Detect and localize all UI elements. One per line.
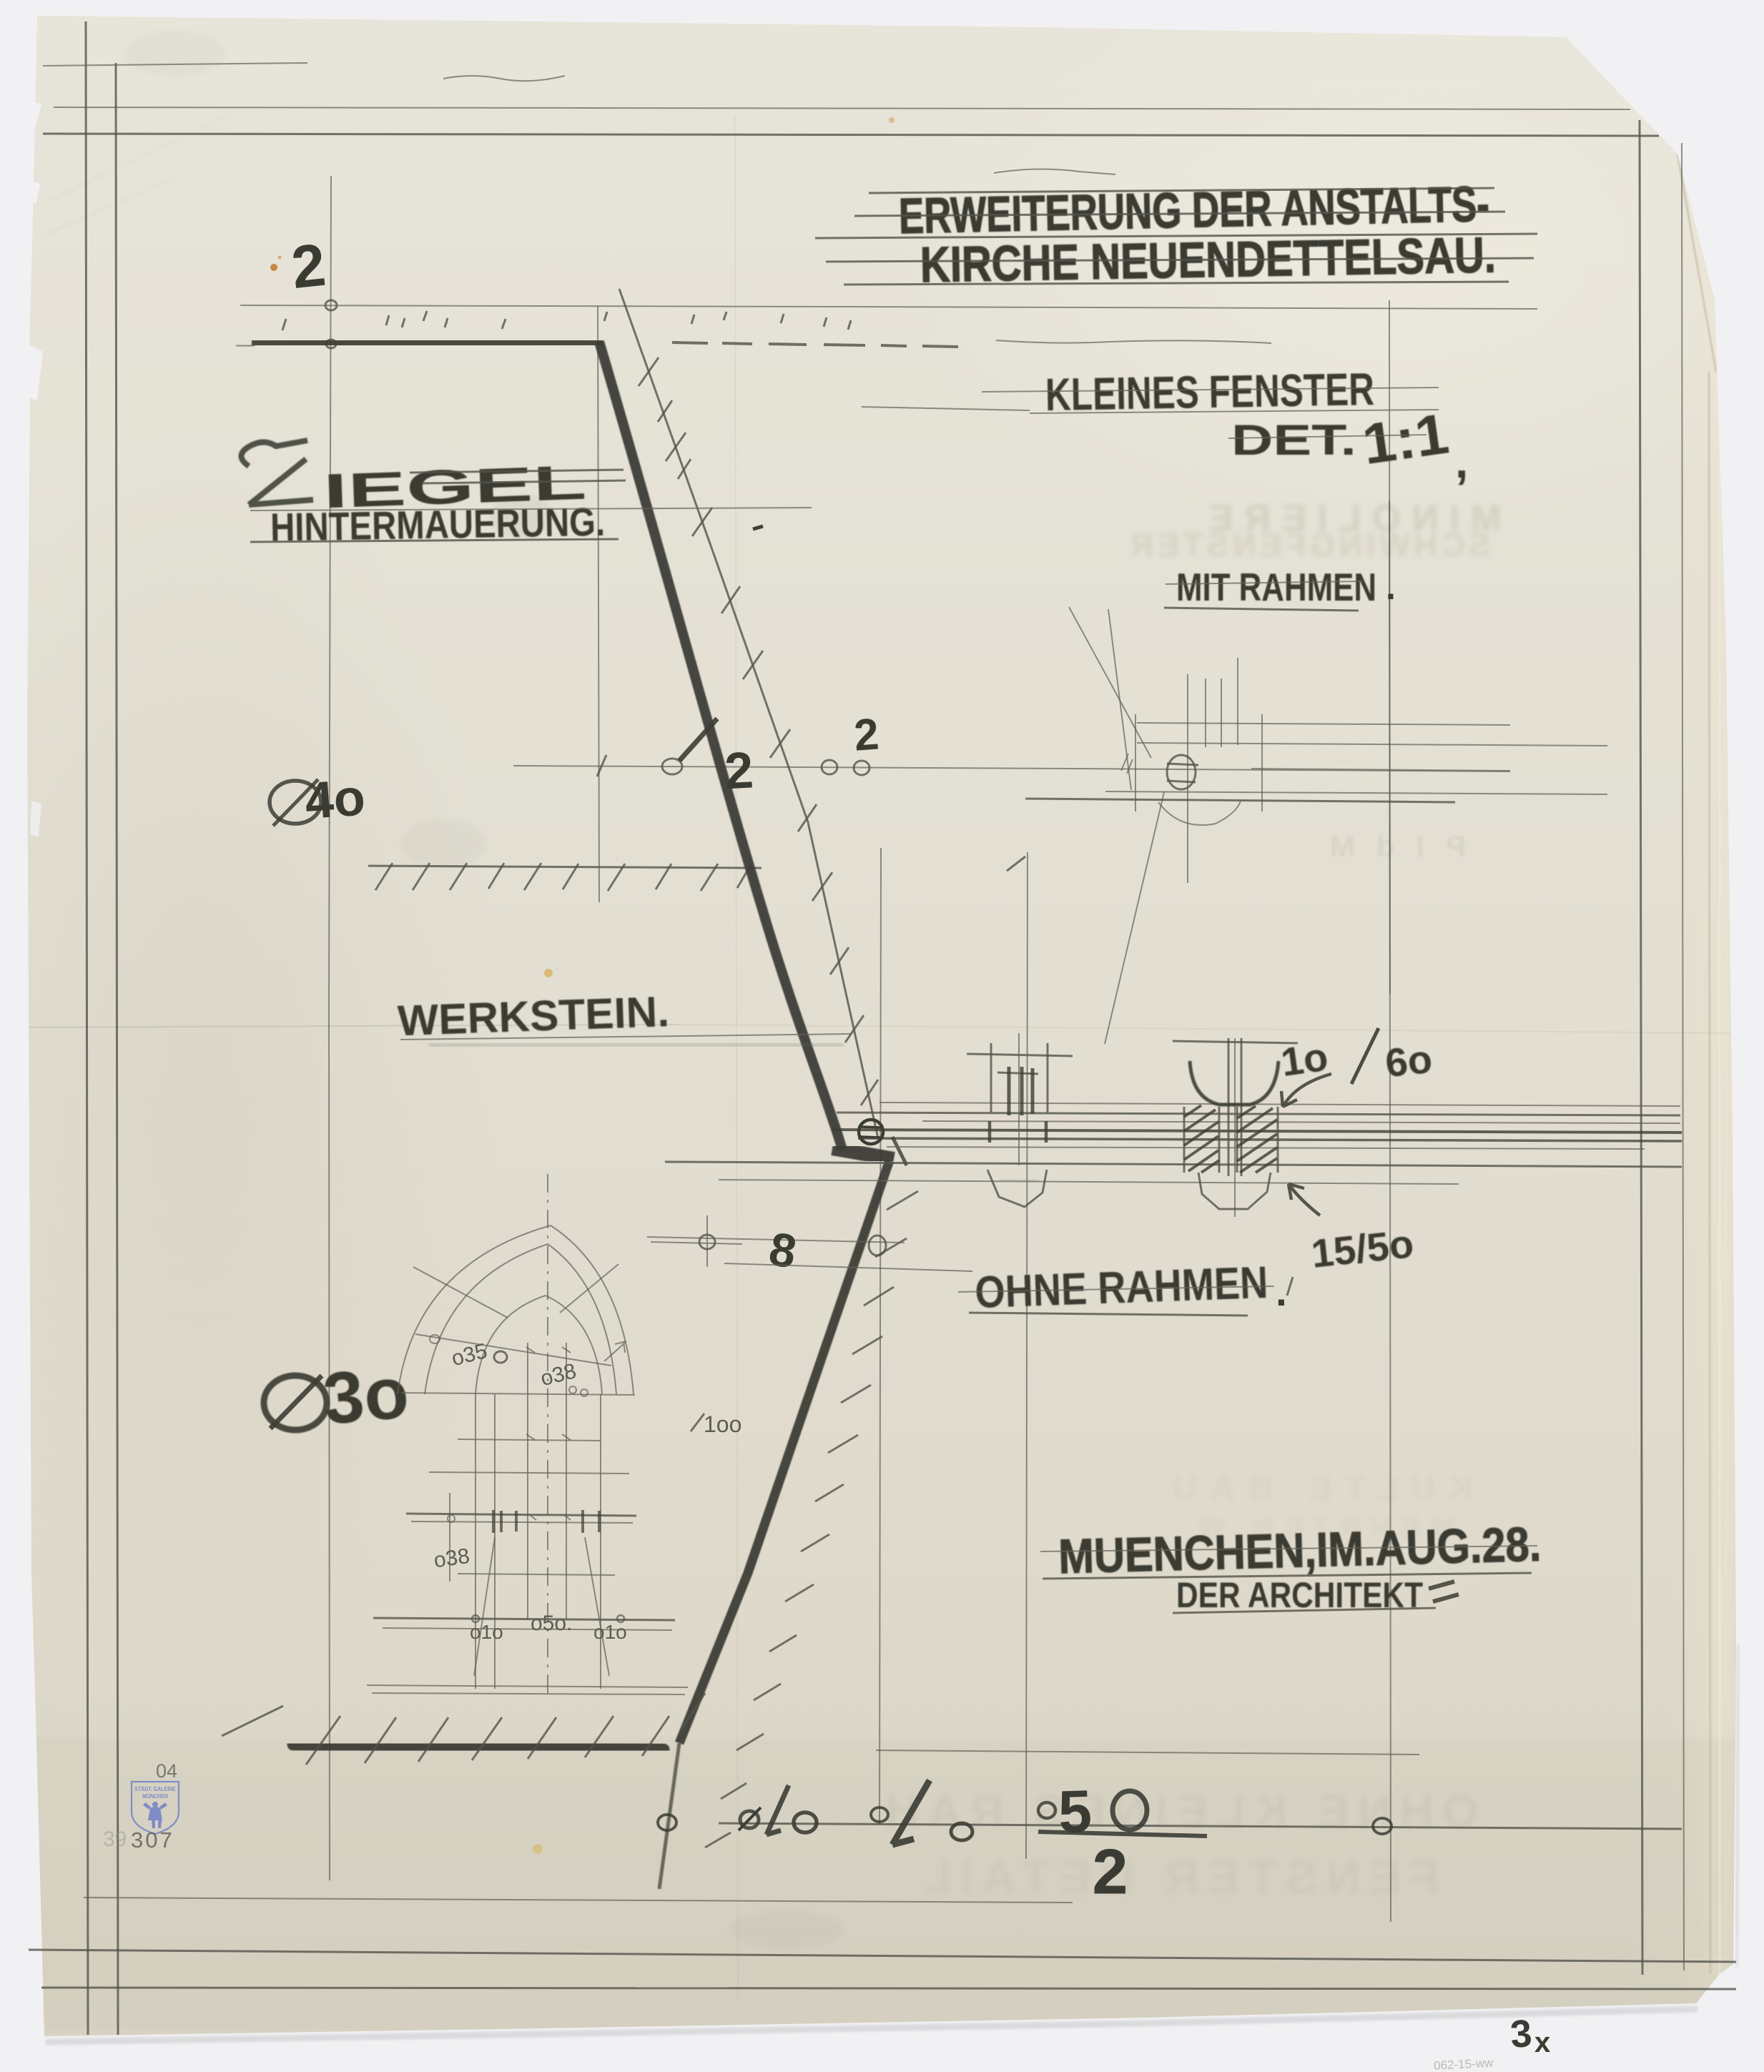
svg-text:o5o.: o5o. bbox=[531, 1612, 572, 1635]
svg-text:1:1: 1:1 bbox=[1359, 401, 1452, 476]
svg-text:DET.: DET. bbox=[1231, 416, 1356, 464]
svg-text:x: x bbox=[1534, 2027, 1550, 2058]
svg-text:STÄDT. GALERIE: STÄDT. GALERIE bbox=[134, 1785, 176, 1792]
svg-text:o38: o38 bbox=[433, 1544, 471, 1573]
svg-text:39: 39 bbox=[103, 1827, 127, 1851]
svg-text:307: 307 bbox=[131, 1827, 174, 1853]
svg-text:o1o: o1o bbox=[470, 1621, 503, 1643]
svg-text:,: , bbox=[1455, 435, 1468, 488]
svg-text:2: 2 bbox=[852, 709, 880, 760]
svg-text:SCHWINGFENSTER: SCHWINGFENSTER bbox=[1130, 526, 1491, 563]
svg-text:2: 2 bbox=[288, 231, 328, 301]
svg-text:4o: 4o bbox=[303, 769, 367, 830]
svg-text:.: . bbox=[1386, 567, 1396, 607]
svg-text:6o: 6o bbox=[1383, 1036, 1434, 1085]
svg-text:5: 5 bbox=[1057, 1777, 1093, 1846]
svg-text:062-15-ww: 062-15-ww bbox=[1434, 2056, 1494, 2072]
svg-text:MIT RAHMEN: MIT RAHMEN bbox=[1176, 565, 1376, 609]
svg-text:2: 2 bbox=[1093, 1836, 1128, 1907]
svg-text:MÜNCHEN: MÜNCHEN bbox=[142, 1792, 168, 1800]
svg-text:.: . bbox=[1276, 1269, 1287, 1315]
svg-text:3o: 3o bbox=[320, 1351, 412, 1440]
svg-text:04: 04 bbox=[156, 1760, 177, 1782]
svg-text:KULTE BAU: KULTE BAU bbox=[1173, 1470, 1473, 1508]
svg-text:1oo: 1oo bbox=[704, 1411, 741, 1437]
svg-text:o1o: o1o bbox=[593, 1621, 627, 1643]
svg-text:3: 3 bbox=[1509, 2012, 1533, 2056]
